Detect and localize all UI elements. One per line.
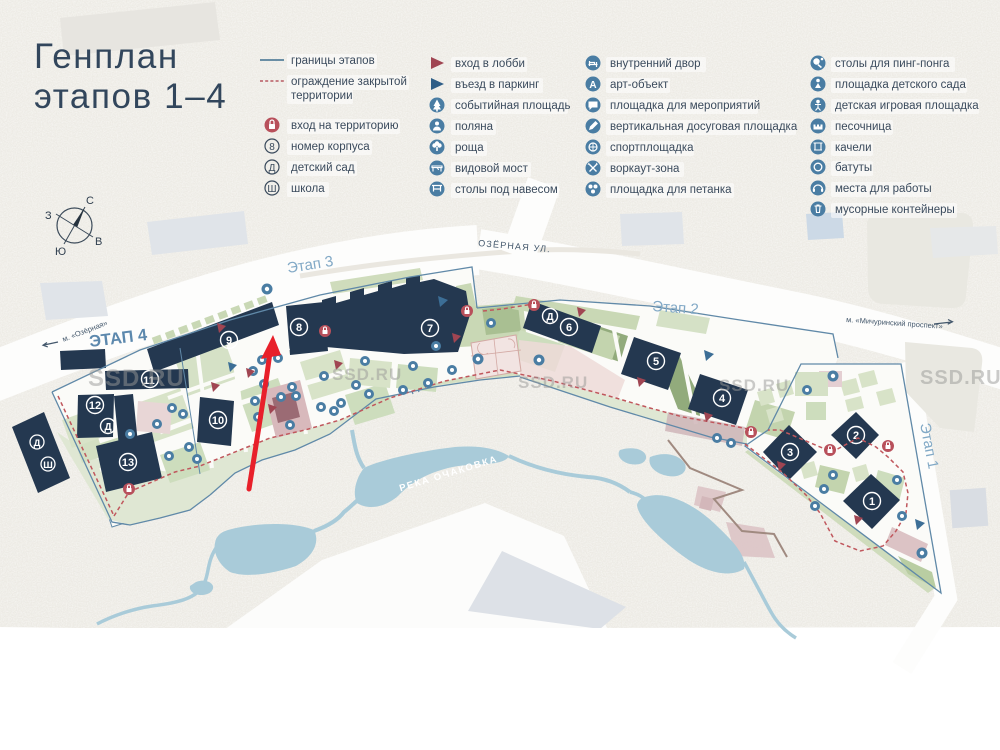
- svg-text:12: 12: [89, 400, 101, 412]
- svg-text:8: 8: [296, 322, 302, 334]
- svg-text:территории: территории: [291, 90, 353, 102]
- svg-text:Ш: Ш: [43, 460, 53, 471]
- svg-text:Д: Д: [34, 438, 41, 449]
- svg-text:столы для пинг-понга: столы для пинг-понга: [835, 58, 950, 70]
- svg-text:1: 1: [869, 496, 875, 508]
- svg-text:площадка детского сада: площадка детского сада: [835, 79, 966, 91]
- svg-text:Д: Д: [546, 312, 553, 323]
- svg-text:SSD.RU: SSD.RU: [719, 376, 789, 395]
- svg-text:детский сад: детский сад: [291, 162, 355, 174]
- svg-text:площадка для петанка: площадка для петанка: [610, 184, 732, 196]
- svg-text:поляна: поляна: [455, 121, 494, 133]
- svg-text:школа: школа: [291, 183, 325, 195]
- svg-text:Ш: Ш: [267, 184, 276, 195]
- svg-text:детская игровая площадка: детская игровая площадка: [835, 100, 979, 112]
- svg-text:воркаут-зона: воркаут-зона: [610, 163, 680, 175]
- svg-text:спортплощадка: спортплощадка: [610, 142, 694, 154]
- svg-text:SSD.RU: SSD.RU: [88, 365, 185, 392]
- svg-text:ограждение закрытой: ограждение закрытой: [291, 76, 407, 88]
- svg-text:Генплан: Генплан: [34, 37, 179, 76]
- svg-text:10: 10: [212, 415, 224, 427]
- svg-text:арт-объект: арт-объект: [610, 79, 669, 91]
- svg-text:границы этапов: границы этапов: [291, 55, 375, 67]
- svg-text:6: 6: [566, 322, 572, 334]
- svg-text:вертикальная досуговая площадк: вертикальная досуговая площадка: [610, 121, 798, 133]
- svg-text:вход на территорию: вход на территорию: [291, 120, 399, 132]
- svg-text:событийная площадь: событийная площадь: [455, 100, 570, 112]
- svg-text:этапов 1–4: этапов 1–4: [34, 77, 227, 116]
- svg-text:С: С: [86, 195, 94, 207]
- svg-text:SSD.RU: SSD.RU: [518, 373, 588, 392]
- svg-text:роща: роща: [455, 142, 484, 154]
- svg-text:Д: Д: [269, 163, 276, 174]
- svg-text:SSD.RU: SSD.RU: [332, 365, 402, 384]
- svg-text:въезд в паркинг: въезд в паркинг: [455, 79, 539, 91]
- svg-text:мусорные контейнеры: мусорные контейнеры: [835, 204, 955, 216]
- svg-text:5: 5: [653, 356, 659, 368]
- svg-text:A: A: [589, 80, 596, 91]
- svg-text:З: З: [45, 210, 52, 222]
- svg-text:SSD.RU: SSD.RU: [920, 367, 1000, 389]
- svg-text:2: 2: [853, 430, 859, 442]
- svg-text:внутренний двор: внутренний двор: [610, 58, 701, 70]
- svg-text:качели: качели: [835, 142, 872, 154]
- svg-text:видовой мост: видовой мост: [455, 163, 529, 175]
- svg-text:площадка для мероприятий: площадка для мероприятий: [610, 100, 760, 112]
- svg-text:вход в лобби: вход в лобби: [455, 58, 525, 70]
- svg-text:13: 13: [122, 457, 134, 469]
- svg-text:3: 3: [787, 447, 793, 459]
- svg-text:Этап 2: Этап 2: [652, 298, 700, 318]
- svg-text:места для работы: места для работы: [835, 183, 932, 195]
- svg-text:7: 7: [427, 323, 433, 335]
- svg-text:столы под навесом: столы под навесом: [455, 184, 558, 196]
- svg-text:В: В: [95, 236, 102, 248]
- svg-text:номер корпуса: номер корпуса: [291, 141, 370, 153]
- svg-text:Д: Д: [104, 422, 111, 433]
- svg-text:8: 8: [269, 142, 275, 153]
- svg-text:песочница: песочница: [835, 121, 892, 133]
- svg-text:батуты: батуты: [835, 162, 872, 174]
- svg-text:9: 9: [226, 335, 232, 347]
- svg-text:Ю: Ю: [55, 246, 66, 258]
